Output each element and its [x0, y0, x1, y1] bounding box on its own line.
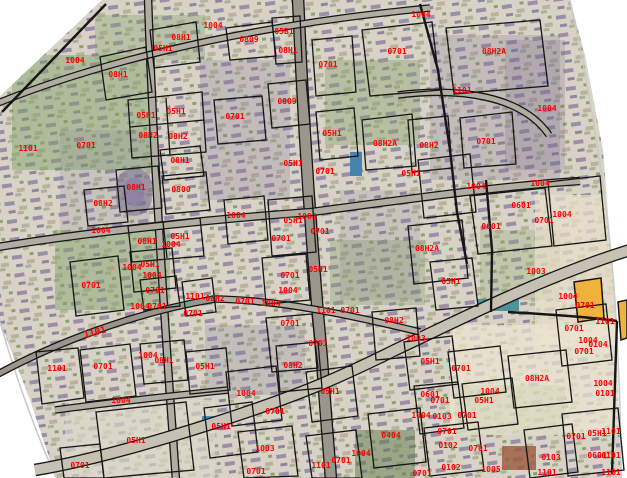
- parcel-label[interactable]: 05H1: [153, 45, 172, 53]
- parcel-label[interactable]: 1101: [316, 307, 335, 315]
- parcel-label[interactable]: 08H2: [419, 142, 438, 150]
- parcel-label[interactable]: 08H1: [137, 238, 156, 246]
- parcel-label[interactable]: 0102: [441, 464, 460, 472]
- parcel-label[interactable]: 1004: [466, 183, 485, 191]
- parcel-label[interactable]: 08H1: [154, 357, 173, 365]
- parcel-label[interactable]: 0103: [432, 413, 451, 421]
- parcel-label[interactable]: 0404: [381, 432, 400, 440]
- parcel-label[interactable]: 0701: [265, 408, 284, 416]
- parcel-label[interactable]: 05H1: [420, 358, 439, 366]
- parcel-label[interactable]: 05H1: [195, 363, 214, 371]
- parcel-label[interactable]: 05H1: [308, 266, 327, 274]
- parcel-label[interactable]: 05H1: [320, 388, 339, 396]
- parcel-label[interactable]: 1101: [83, 326, 108, 341]
- parcel-label[interactable]: 1004: [593, 380, 612, 388]
- parcel-label[interactable]: 0701: [183, 310, 202, 318]
- parcel-label[interactable]: 08H1: [171, 34, 190, 42]
- parcel-label[interactable]: 08H1: [170, 157, 189, 165]
- parcel-label[interactable]: 1101: [311, 462, 330, 470]
- parcel-label[interactable]: 08H2A: [525, 375, 549, 383]
- parcel-label[interactable]: 1004: [142, 272, 161, 280]
- parcel-label[interactable]: 0101: [595, 390, 614, 398]
- parcel-label[interactable]: 0701: [280, 272, 299, 280]
- parcel-label[interactable]: 1003: [255, 445, 274, 453]
- parcel-label[interactable]: 1004: [530, 180, 549, 188]
- parcel-label[interactable]: 05H1: [136, 112, 155, 120]
- parcel-label[interactable]: 08H1: [126, 184, 145, 192]
- parcel-label[interactable]: 0701: [315, 168, 334, 176]
- parcel-label[interactable]: 0809: [277, 98, 296, 106]
- parcel-label[interactable]: 0601: [511, 202, 530, 210]
- parcel-label[interactable]: 0701: [468, 445, 487, 453]
- parcel-label[interactable]: 0701: [76, 142, 95, 150]
- parcel-label[interactable]: 1004: [351, 450, 370, 458]
- parcel-label[interactable]: 1003: [406, 335, 425, 343]
- parcel-label[interactable]: 0701: [566, 433, 585, 441]
- parcel-label[interactable]: 0701: [246, 468, 265, 476]
- parcel-label[interactable]: 0103: [541, 454, 560, 462]
- parcel-label[interactable]: 08H2: [168, 133, 187, 141]
- parcel-label[interactable]: 0701: [271, 235, 290, 243]
- parcel-label[interactable]: 0701: [476, 138, 495, 146]
- parcel-label[interactable]: 1004: [122, 264, 141, 272]
- parcel-label[interactable]: 1004: [480, 388, 499, 396]
- parcel-label[interactable]: 1004: [203, 22, 222, 30]
- parcel-label[interactable]: 0701: [318, 61, 337, 69]
- parcel-label[interactable]: 05H1: [166, 108, 185, 116]
- parcel-label[interactable]: 0701: [145, 287, 164, 295]
- parcel-label[interactable]: 0701: [564, 325, 583, 333]
- parcel-label[interactable]: 1101: [185, 293, 204, 301]
- parcel-label[interactable]: 05H1: [126, 437, 145, 445]
- parcel-label[interactable]: 0701: [225, 113, 244, 121]
- parcel-label[interactable]: 0809: [239, 36, 258, 44]
- parcel-label[interactable]: 0701: [387, 48, 406, 56]
- parcel-label[interactable]: 1004: [111, 397, 130, 405]
- parcel-label[interactable]: 08H2: [384, 317, 403, 325]
- parcel-label[interactable]: 1101: [601, 428, 620, 436]
- parcel-label[interactable]: 0701: [235, 298, 254, 306]
- parcel-label[interactable]: 05H1: [211, 423, 230, 431]
- parcel-label[interactable]: 0102: [438, 442, 457, 450]
- parcel-label[interactable]: 08H1: [108, 71, 127, 79]
- parcel-label[interactable]: 0701: [331, 457, 350, 465]
- parcel-label[interactable]: 1004: [537, 105, 556, 113]
- parcel-label[interactable]: 08H2: [283, 362, 302, 370]
- parcel-label[interactable]: 0701: [340, 307, 359, 315]
- parcel-label[interactable]: 1101: [47, 365, 66, 373]
- parcel-label[interactable]: 08H2A: [373, 140, 397, 148]
- parcel-label[interactable]: 1003: [297, 213, 316, 221]
- parcel-label[interactable]: 1004: [558, 293, 577, 301]
- parcel-label-layer: 1101100408H105H108H105H105H108H208H20701…: [0, 0, 627, 478]
- parcel-label[interactable]: 05H1: [283, 160, 302, 168]
- parcel-label[interactable]: 1004: [65, 57, 84, 65]
- parcel-label[interactable]: 05H1: [401, 170, 420, 178]
- parcel-label[interactable]: 08H2: [138, 132, 157, 140]
- parcel-label[interactable]: 1004: [261, 300, 280, 308]
- parcel-label[interactable]: 0701: [308, 340, 327, 348]
- parcel-label[interactable]: 0701: [147, 303, 166, 311]
- parcel-label[interactable]: 0701: [451, 365, 470, 373]
- parcel-label[interactable]: 0800: [171, 186, 190, 194]
- parcel-label[interactable]: 0701: [280, 320, 299, 328]
- parcel-label[interactable]: 05B1: [274, 28, 293, 36]
- parcel-label[interactable]: 0701: [412, 470, 431, 478]
- parcel-label[interactable]: 08H1: [278, 47, 297, 55]
- parcel-label[interactable]: 1004: [226, 212, 245, 220]
- parcel-label[interactable]: 1004: [161, 241, 180, 249]
- parcel-label[interactable]: 0701: [575, 302, 594, 310]
- parcel-label[interactable]: 0601: [481, 223, 500, 231]
- map-viewport[interactable]: 1101100408H105H108H105H105H108H208H20701…: [0, 0, 627, 478]
- parcel-label[interactable]: 08H2A: [482, 48, 506, 56]
- parcel-label[interactable]: 0701: [437, 428, 456, 436]
- parcel-label[interactable]: 0701: [310, 228, 329, 236]
- parcel-label[interactable]: 0701: [81, 282, 100, 290]
- parcel-label[interactable]: 08H2: [205, 295, 224, 303]
- parcel-label[interactable]: 05H1: [140, 261, 159, 269]
- parcel-label[interactable]: 05H1: [474, 397, 493, 405]
- parcel-label[interactable]: 1101: [595, 318, 614, 326]
- parcel-label[interactable]: 0701: [534, 217, 553, 225]
- parcel-label[interactable]: 1003: [526, 268, 545, 276]
- parcel-label[interactable]: 1004: [411, 11, 430, 19]
- parcel-label[interactable]: 0701: [70, 462, 89, 470]
- parcel-label[interactable]: 0701: [457, 412, 476, 420]
- parcel-label[interactable]: 1004: [91, 227, 110, 235]
- parcel-label[interactable]: 0701: [430, 397, 449, 405]
- parcel-label[interactable]: 1005: [481, 466, 500, 474]
- parcel-label[interactable]: 0701: [93, 363, 112, 371]
- parcel-label[interactable]: 1101: [452, 87, 471, 95]
- parcel-label[interactable]: 0701: [574, 348, 593, 356]
- parcel-label[interactable]: 0101: [601, 452, 620, 460]
- parcel-label[interactable]: 05H1: [441, 278, 460, 286]
- parcel-label[interactable]: 1004: [411, 412, 430, 420]
- parcel-label[interactable]: 1004: [552, 211, 571, 219]
- parcel-label[interactable]: 1004: [278, 287, 297, 295]
- parcel-label[interactable]: 08H2A: [415, 245, 439, 253]
- parcel-label[interactable]: 1101: [18, 145, 37, 153]
- parcel-label[interactable]: 08H2: [93, 200, 112, 208]
- parcel-label[interactable]: 1101: [601, 469, 620, 477]
- parcel-label[interactable]: 1004: [236, 390, 255, 398]
- parcel-label[interactable]: 05H1: [322, 130, 341, 138]
- parcel-label[interactable]: 1101: [537, 469, 556, 477]
